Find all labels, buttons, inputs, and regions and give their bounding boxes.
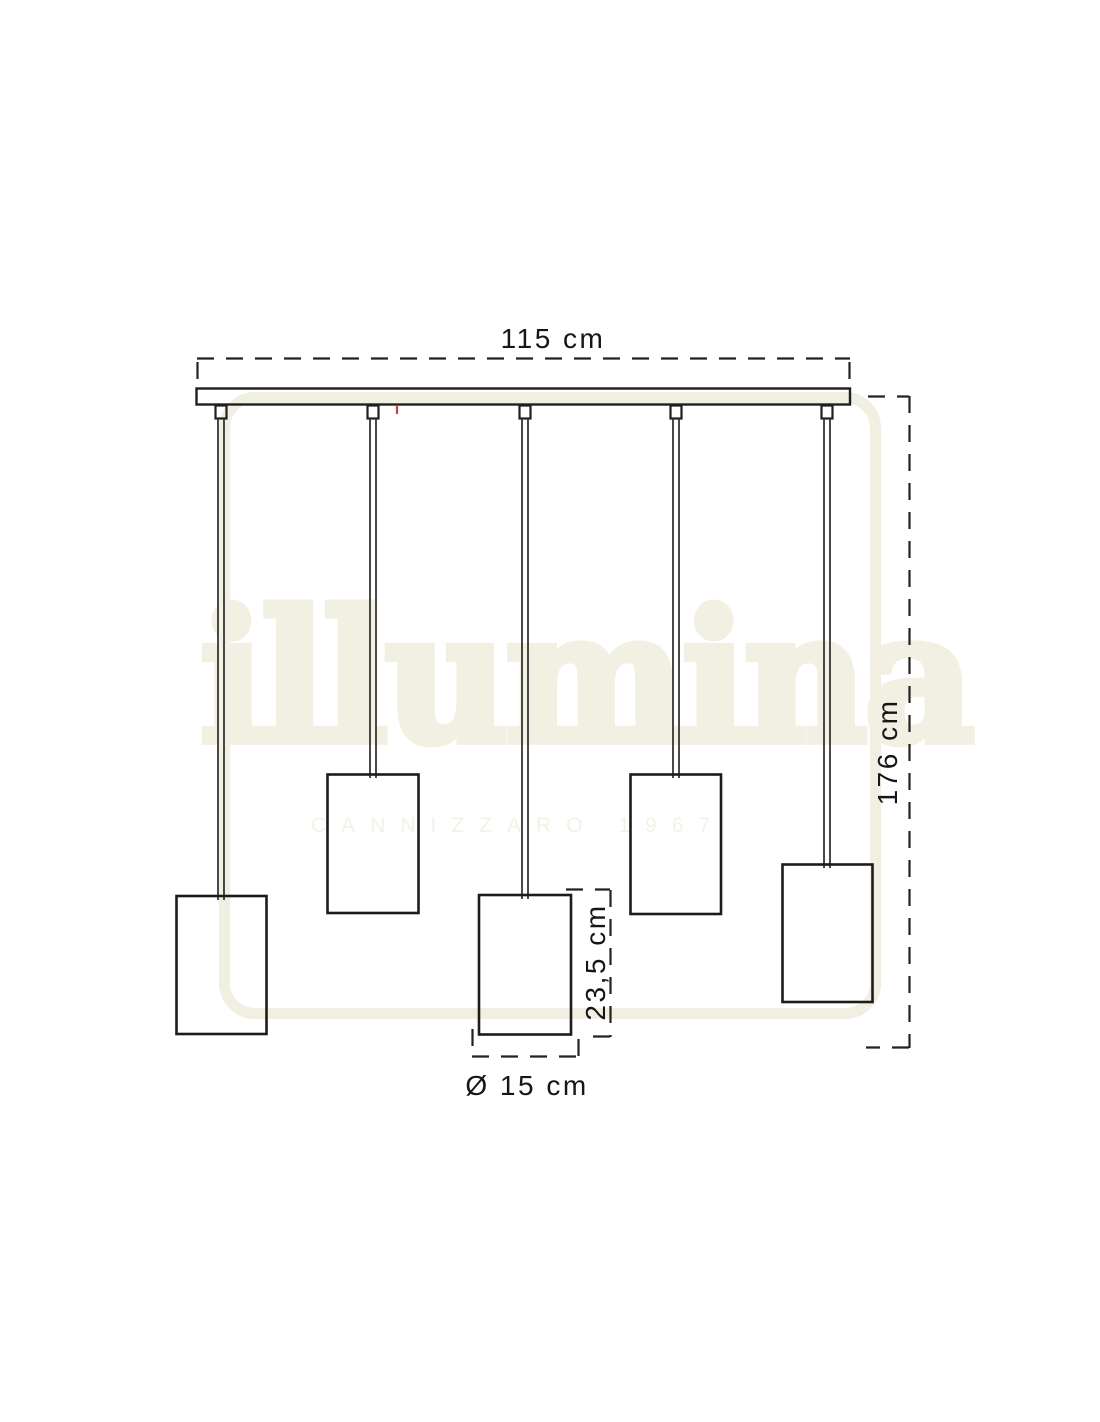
cord-connector [216, 406, 227, 419]
suspension-cord [673, 418, 679, 778]
suspension-cord [370, 418, 376, 778]
suspension-cord [824, 418, 830, 868]
pendant-shade [631, 775, 722, 915]
cord-connector [368, 406, 379, 419]
cord-connector [671, 406, 682, 419]
width-dimension [197, 359, 850, 387]
cord-connector [520, 406, 531, 419]
suspension-cords [218, 418, 830, 900]
pendant-shade [177, 896, 267, 1034]
dimension-diagram: illumina CANNIZZARO 1967 [0, 0, 1100, 1422]
ceiling-bar [197, 389, 851, 405]
cord-connector [822, 406, 833, 419]
suspension-cord [218, 418, 224, 900]
diameter-dimension-label: Ø 15 cm [427, 1067, 627, 1105]
shade-height-dimension-label: 23,5 cm [577, 862, 615, 1062]
width-dimension-label: 115 cm [453, 320, 653, 358]
height-dimension-label: 176 cm [869, 652, 907, 852]
pendant-shade [328, 775, 419, 914]
pendant-shade [783, 865, 873, 1003]
pendant-shades [177, 775, 873, 1035]
cord-connectors [216, 406, 833, 419]
diagram-canvas [0, 0, 1100, 1422]
diameter-dimension [472, 1029, 579, 1057]
pendant-shade [479, 895, 571, 1035]
suspension-cord [522, 418, 528, 899]
